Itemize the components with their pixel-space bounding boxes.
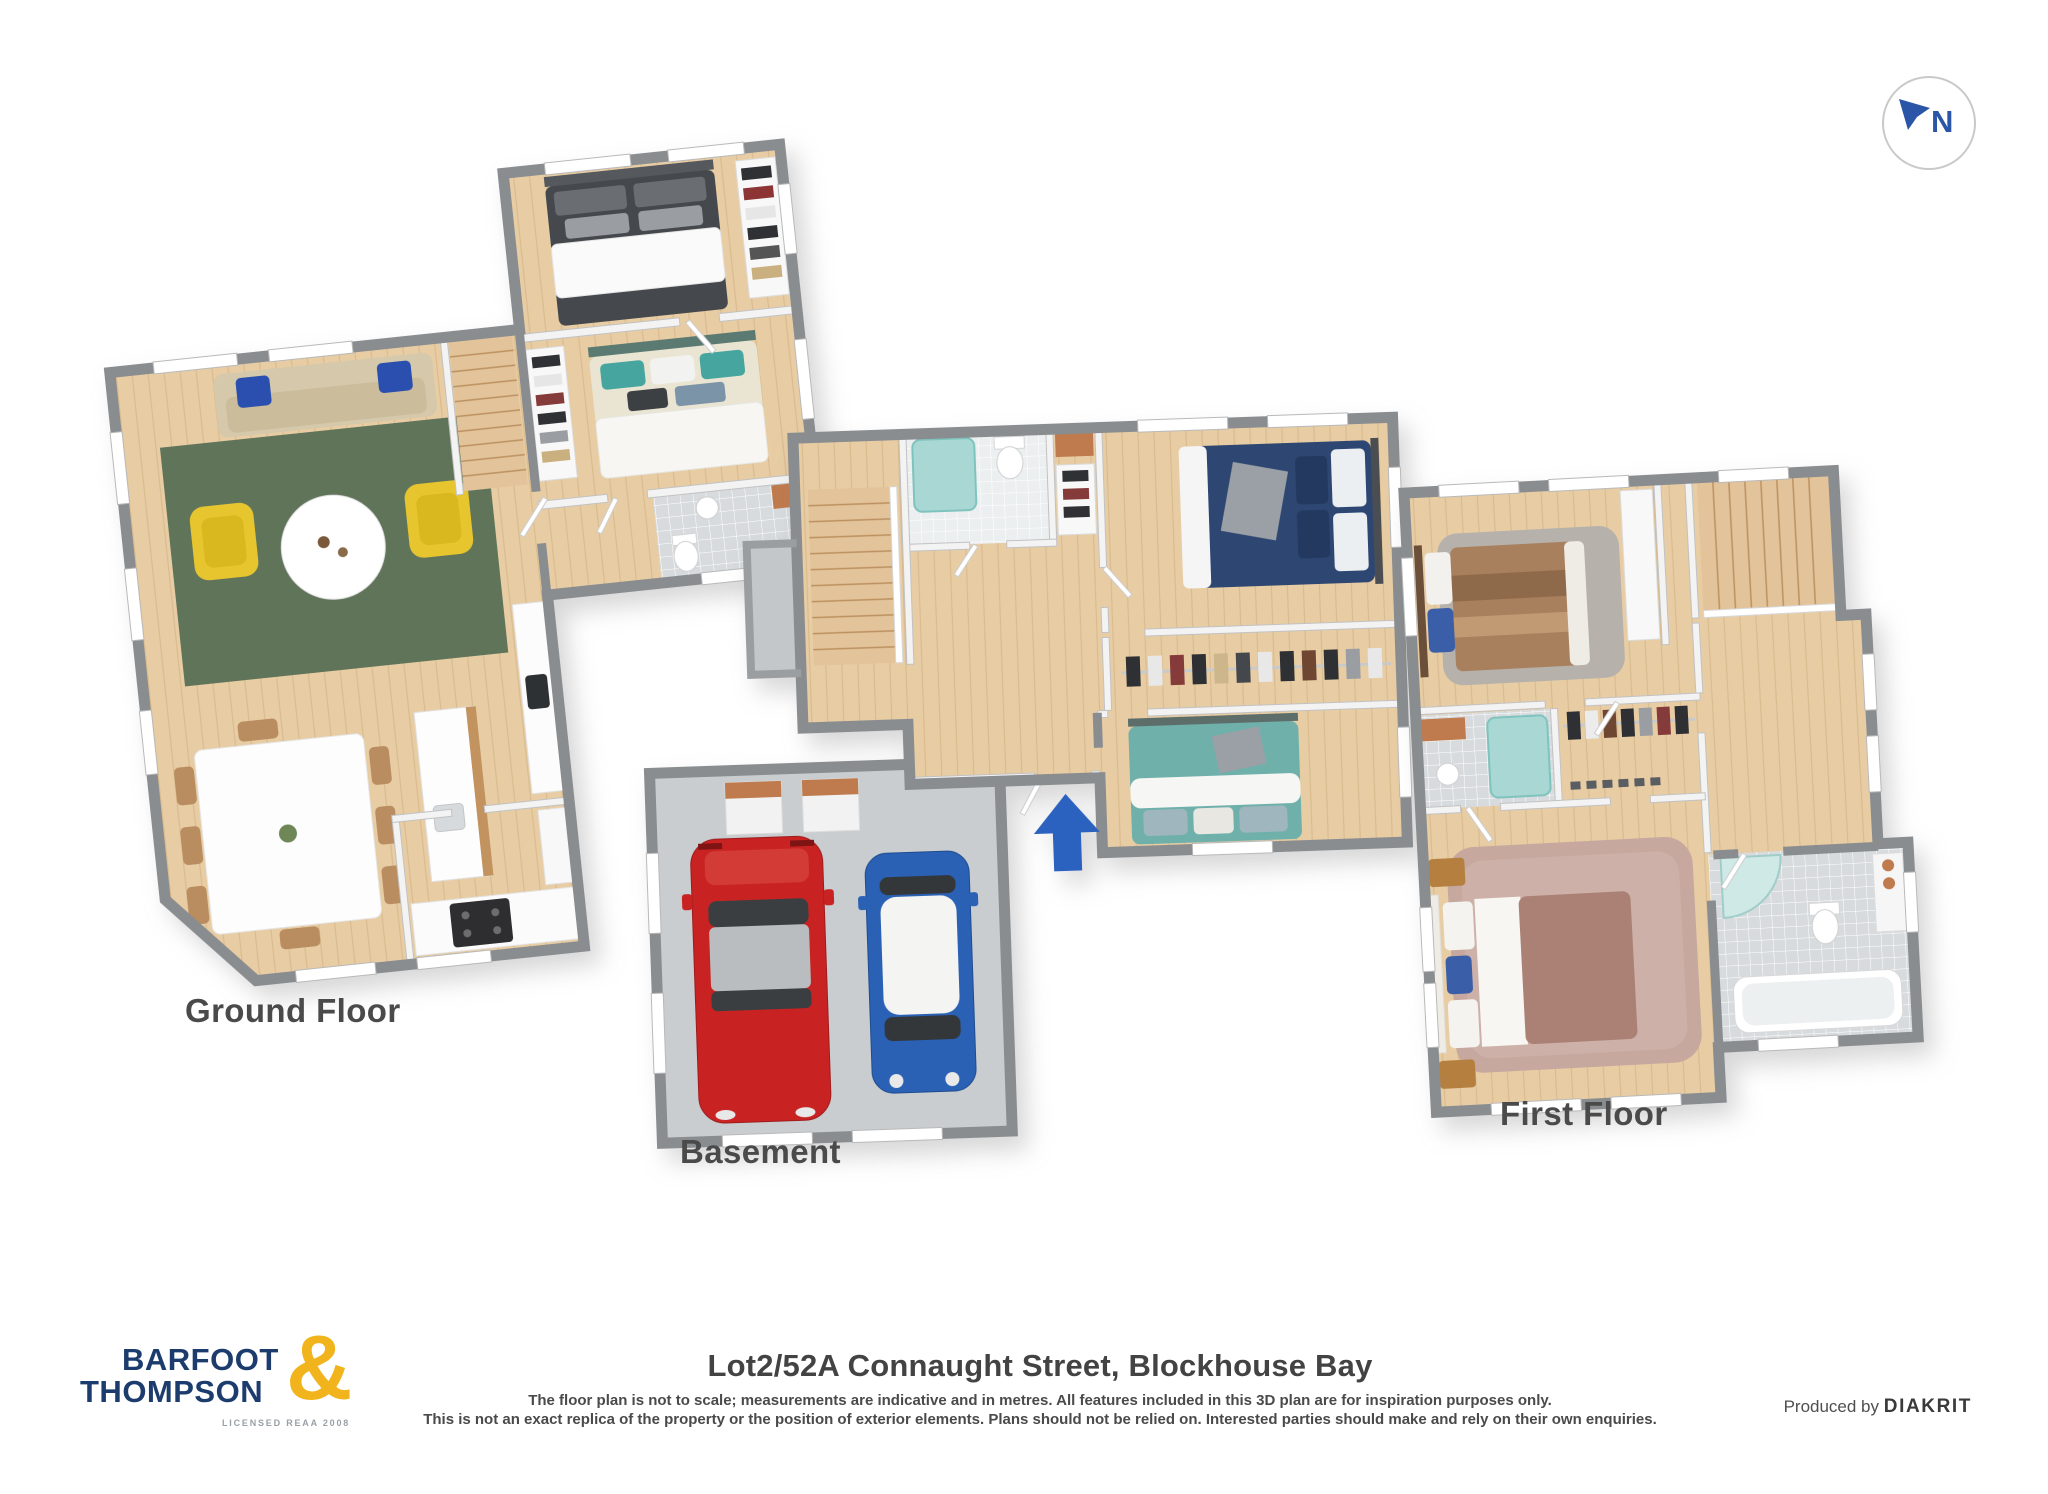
red-car [680, 835, 842, 1124]
basement-bedroom-navy [1178, 438, 1383, 591]
master-bedroom [1426, 836, 1704, 1090]
stairs [1697, 476, 1836, 618]
yellow-armchair [188, 501, 259, 581]
basement-plan [618, 406, 1453, 1154]
barfoot-thompson-logo: BARFOOT THOMPSON & LICENSED REAA 2008 [80, 1342, 380, 1452]
first-floor-label: First Floor [1500, 1095, 1668, 1133]
entry-arrow-icon [1033, 793, 1102, 872]
basement-label: Basement [680, 1133, 841, 1171]
logo-ampersand: & [286, 1316, 352, 1421]
produced-by: Produced by DIAKRIT [1784, 1396, 1972, 1418]
logo-license: LICENSED REAA 2008 [222, 1418, 350, 1428]
sink [1436, 763, 1459, 786]
blue-car [856, 850, 984, 1094]
toilet [996, 446, 1023, 479]
logo-line2: THOMPSON [80, 1374, 263, 1410]
shower [1487, 715, 1551, 798]
producer-name: DIAKRIT [1884, 1396, 1972, 1417]
basement-bedroom-teal [1128, 713, 1302, 845]
oven [449, 898, 513, 948]
cooktop [525, 674, 550, 710]
shower [912, 438, 976, 512]
nightstand [1428, 857, 1465, 887]
compass-north-label: N [1931, 104, 1953, 140]
ground-floor-label: Ground Floor [185, 992, 401, 1030]
blue-pillow [235, 375, 272, 408]
throw-blanket [1221, 462, 1288, 541]
yellow-armchair [403, 479, 474, 559]
compass-icon: N [1882, 76, 1976, 170]
nightstand [1439, 1059, 1476, 1089]
blue-pillow [376, 360, 413, 393]
first-floor-plan [1388, 452, 1937, 1133]
logo-line1: BARFOOT [122, 1342, 279, 1378]
floorplan-poster: Ground Floor Basement First Floor N Lot2… [0, 0, 2048, 1494]
produced-by-label: Produced by [1784, 1397, 1879, 1416]
vanity [1421, 717, 1466, 741]
stairs [808, 487, 903, 666]
